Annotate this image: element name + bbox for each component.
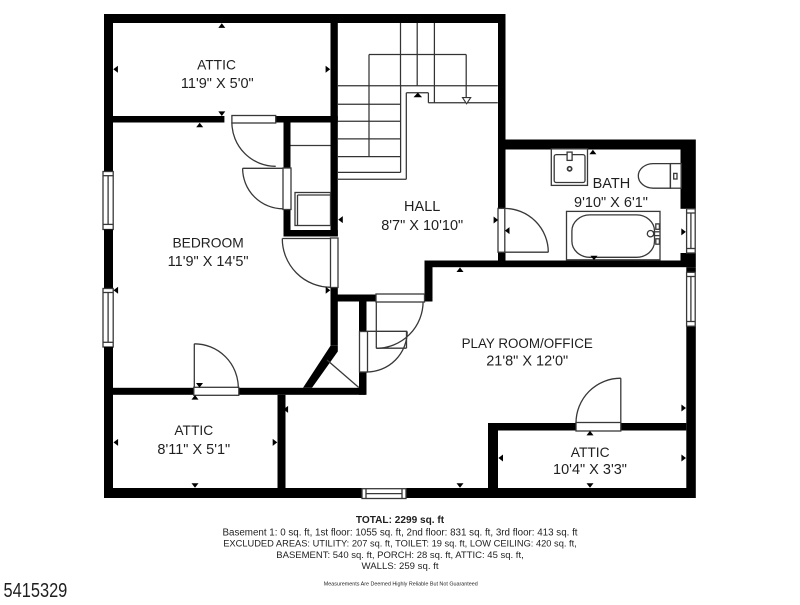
svg-text:ATTIC: ATTIC: [571, 445, 610, 460]
svg-text:5415329: 5415329: [4, 578, 68, 600]
svg-text:TOTAL: 2299 sq. ft: TOTAL: 2299 sq. ft: [356, 515, 445, 526]
svg-text:BATH: BATH: [593, 176, 631, 192]
svg-text:ATTIC: ATTIC: [174, 423, 213, 438]
svg-text:WALLS: 259 sq. ft: WALLS: 259 sq. ft: [362, 561, 439, 572]
svg-text:BASEMENT: 540 sq. ft, PORCH: 2: BASEMENT: 540 sq. ft, PORCH: 28 sq. ft, …: [276, 550, 523, 561]
svg-text:9'10" X 6'1": 9'10" X 6'1": [574, 195, 648, 211]
svg-text:8'11" X 5'1": 8'11" X 5'1": [157, 442, 230, 458]
svg-text:10'4" X 3'3": 10'4" X 3'3": [553, 462, 627, 478]
svg-text:ATTIC: ATTIC: [197, 57, 236, 72]
svg-text:Basement 1: 0 sq. ft, 1st floo: Basement 1: 0 sq. ft, 1st floor: 1055 sq…: [222, 528, 577, 539]
svg-text:21'8" X 12'0": 21'8" X 12'0": [486, 354, 568, 370]
svg-text:PLAY ROOM/OFFICE: PLAY ROOM/OFFICE: [462, 336, 593, 351]
svg-text:BEDROOM: BEDROOM: [172, 235, 243, 250]
svg-text:Measurements Are Deemed Highly: Measurements Are Deemed Highly Reliable …: [324, 582, 478, 588]
svg-text:HALL: HALL: [404, 199, 440, 215]
svg-text:11'9" X 14'5": 11'9" X 14'5": [168, 254, 249, 270]
svg-text:8'7" X 10'10": 8'7" X 10'10": [381, 218, 463, 234]
svg-text:11'9" X 5'0": 11'9" X 5'0": [181, 76, 254, 92]
svg-text:EXCLUDED AREAS: UTILITY: 207 s: EXCLUDED AREAS: UTILITY: 207 sq. ft, TOI…: [223, 539, 577, 549]
